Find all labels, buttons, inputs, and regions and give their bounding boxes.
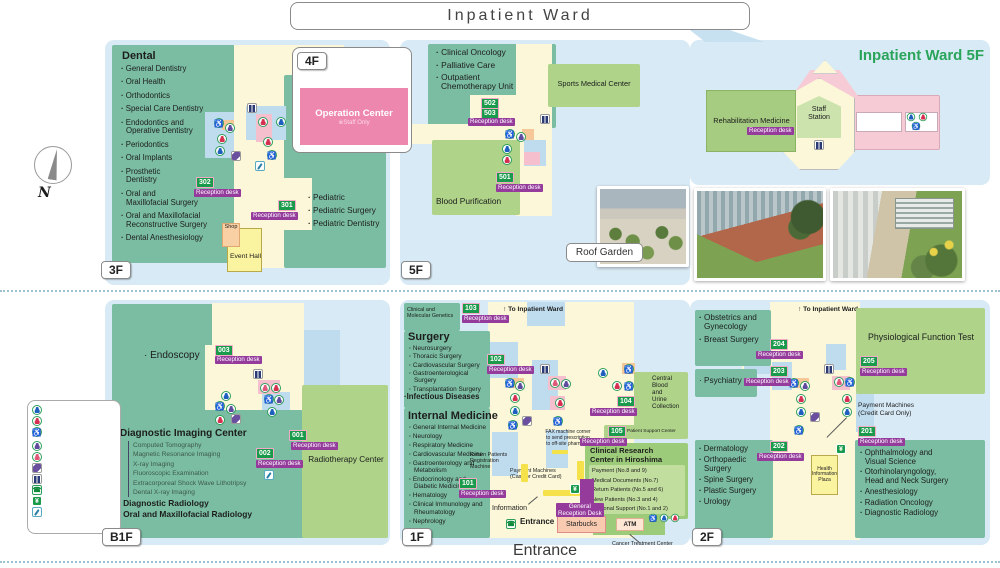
ostomate-icon bbox=[515, 381, 525, 391]
womens-room-icon bbox=[919, 113, 928, 122]
elevator-icon bbox=[540, 114, 550, 124]
starbucks-block: Starbucks bbox=[557, 516, 606, 533]
hospital-building bbox=[895, 198, 954, 229]
reception-502-desk: Reception desk bbox=[468, 118, 515, 126]
reception-104-badge: 104 bbox=[617, 396, 635, 407]
department-item: Orthodontics bbox=[121, 92, 231, 101]
surgery-heading: Surgery bbox=[408, 331, 450, 343]
mens-room-icon bbox=[598, 368, 608, 378]
department-item: Pediatric Dentistry bbox=[308, 219, 388, 228]
crc-item: Payment (No.8 and 9) bbox=[592, 467, 686, 477]
starbucks-label: Starbucks bbox=[566, 521, 597, 528]
multipurpose-restroom-icon: ♿ bbox=[505, 129, 515, 139]
elevator-icon bbox=[32, 474, 42, 484]
b1f-blue-patch-1 bbox=[304, 330, 340, 386]
multipurpose-restroom-icon: ♿ bbox=[845, 377, 855, 387]
brush-teeth-icon bbox=[32, 507, 42, 517]
crc-item: Medical Documents (No.7) bbox=[592, 477, 686, 487]
escalator-icon bbox=[810, 412, 820, 422]
tab-b1f: B1F bbox=[102, 528, 141, 546]
operation-center-label: Operation Center bbox=[315, 108, 393, 119]
operation-center-block: Operation Center ※Staff Only bbox=[300, 88, 408, 145]
womens-room-icon bbox=[671, 514, 680, 523]
ostomate-icon bbox=[800, 381, 810, 391]
elevator-icon bbox=[540, 364, 550, 374]
department-item: Prosthetic Dentistry bbox=[121, 168, 231, 186]
multipurpose-restroom-icon: ♿ bbox=[624, 381, 634, 391]
department-item: Thoracic Surgery bbox=[409, 353, 489, 360]
reception-105-badge: 105 bbox=[608, 426, 626, 437]
roof-garden-label-box: Roof Garden bbox=[566, 243, 643, 262]
health-plaza-block: Health Information Plaza bbox=[811, 455, 838, 495]
ostomate-icon bbox=[32, 441, 42, 451]
mens-room-icon bbox=[842, 407, 852, 417]
obstetrics-list: Obstetrics and GynecologyBreast Surgery bbox=[699, 314, 773, 348]
department-item: Otorhinolaryngology, Head and Neck Surge… bbox=[860, 468, 986, 485]
escalator-icon bbox=[231, 151, 241, 161]
multipurpose-restroom-icon: ♿ bbox=[214, 118, 224, 128]
department-item: Diagnostic Radiology bbox=[118, 499, 308, 508]
endoscopy-label: · Endoscopy bbox=[144, 350, 200, 361]
shop-block: Shop bbox=[222, 223, 240, 247]
multipurpose-restroom-icon: ♿ bbox=[624, 364, 634, 374]
escalator-icon bbox=[32, 463, 42, 473]
ostomate-icon bbox=[561, 379, 571, 389]
reception-204-desk: Reception desk bbox=[756, 351, 803, 359]
pediatric-list: PediatricPediatric SurgeryPediatric Dent… bbox=[308, 193, 388, 232]
department-item: Radiation Oncology bbox=[860, 499, 986, 508]
department-item: Special Care Dentistry bbox=[121, 105, 231, 114]
oncology-list: Clinical OncologyPalliative CareOutpatie… bbox=[436, 48, 548, 95]
multipurpose-restroom-icon: ♿ bbox=[649, 514, 658, 523]
reception-202-badge: 202 bbox=[770, 441, 788, 452]
reception-203-badge: 203 bbox=[770, 366, 788, 377]
rehabilitation-label: Rehabilitation Medicine bbox=[707, 116, 796, 125]
physiological-function-label: Physiological Function Test bbox=[858, 332, 984, 342]
reception-101-badge: 101 bbox=[459, 478, 477, 489]
reception-002-desk: Reception desk bbox=[256, 460, 303, 468]
crc-list: Payment (No.8 and 9)Medical Documents (N… bbox=[592, 467, 686, 515]
entrance-big-label: Entrance bbox=[470, 542, 620, 560]
womens-room-icon bbox=[612, 381, 622, 391]
blood-purification-label: Blood Purification bbox=[436, 196, 501, 206]
roof-garden-label: Roof Garden bbox=[576, 247, 633, 258]
dental-heading: Dental bbox=[122, 50, 156, 62]
roof-garden-photo-3 bbox=[830, 188, 965, 281]
crc-item: Return Patients (No.5 and 6) bbox=[592, 486, 686, 496]
department-item: Oral Health bbox=[121, 78, 231, 87]
reception-202-desk: Reception desk bbox=[757, 453, 804, 461]
public-phone-icon: ☎ bbox=[506, 519, 516, 529]
reception-102-badge: 102 bbox=[487, 354, 505, 365]
department-item: Breast Surgery bbox=[699, 336, 773, 345]
imaging-item: Extracorporeal Shock Wave Lithotripsy bbox=[133, 479, 298, 488]
ostomate-icon bbox=[226, 404, 236, 414]
sports-medical-center-label: Sports Medical Center bbox=[550, 79, 638, 88]
physiological-function-area bbox=[856, 308, 985, 394]
compass-north-label: N bbox=[38, 185, 51, 201]
event-hall-label: Event Hall bbox=[230, 253, 261, 260]
reception-103-desk: Reception desk bbox=[462, 315, 509, 323]
ward-reception-desk: Reception desk bbox=[747, 127, 794, 135]
fax-machine-bar bbox=[552, 450, 568, 454]
reception-205-desk: Reception desk bbox=[860, 368, 907, 376]
elevator-icon bbox=[814, 140, 824, 150]
womens-room-icon bbox=[842, 394, 852, 404]
ostomate-icon bbox=[225, 123, 235, 133]
reception-302-badge: 302 bbox=[196, 177, 214, 188]
womens-room-icon bbox=[271, 383, 281, 393]
mens-room-icon bbox=[221, 391, 231, 401]
general-reception-label: General Reception Desk bbox=[556, 503, 604, 517]
internal-medicine-heading: Internal Medicine bbox=[408, 410, 498, 422]
surgery-list: NeurosurgeryThoracic SurgeryCardiovascul… bbox=[409, 345, 489, 394]
department-item: Pediatric bbox=[308, 193, 388, 202]
department-item: Urology bbox=[699, 498, 775, 507]
cancer-center-label: Cancer Treatment Center bbox=[612, 541, 673, 547]
department-item: Cardiovascular Surgery bbox=[409, 362, 489, 369]
central-blood-label: Central Blood and Urine Collection bbox=[652, 375, 679, 410]
payment-machine-icon: ¥ bbox=[836, 444, 846, 454]
department-item: Anesthesiology bbox=[860, 488, 986, 497]
nursing-room-icon bbox=[834, 377, 844, 387]
reception-301-desk: Reception desk bbox=[251, 212, 298, 220]
department-item: Obstetrics and Gynecology bbox=[699, 314, 773, 332]
imaging-heading: Diagnostic Imaging Center bbox=[120, 428, 247, 439]
internal-medicine-list: General Internal MedicineNeurologyRespir… bbox=[409, 424, 491, 527]
department-item: Endocrinology and Diabetic Medicine bbox=[409, 476, 491, 490]
dental-list: General DentistryOral HealthOrthodontics… bbox=[121, 65, 231, 247]
reception-205-badge: 205 bbox=[860, 356, 878, 367]
radiotherapy-label: Radiotherapy Center bbox=[305, 455, 387, 464]
womens-room-icon bbox=[510, 393, 520, 403]
reception-301-badge: 301 bbox=[278, 200, 296, 211]
elevator-icon bbox=[824, 364, 834, 374]
reception-101-desk: Reception desk bbox=[459, 490, 506, 498]
department-item: Pediatric Surgery bbox=[308, 206, 388, 215]
title-box: Inpatient Ward bbox=[290, 2, 750, 30]
reception-102-desk: Reception desk bbox=[487, 366, 534, 374]
tab-1f: 1F bbox=[402, 528, 432, 546]
public-phone-icon: ☎ bbox=[32, 485, 42, 495]
roof-garden-photo-2 bbox=[694, 188, 826, 281]
staff-station-label: Staff Station bbox=[797, 106, 841, 122]
nursing-room-icon bbox=[32, 452, 42, 462]
separator-bottom bbox=[0, 561, 1000, 563]
mens-room-icon bbox=[907, 113, 916, 122]
atm-block: ATM bbox=[616, 518, 644, 531]
to-inpatient-ward-label: ↑ To Inpatient Ward bbox=[503, 306, 563, 313]
reception-002-badge: 002 bbox=[256, 448, 274, 459]
page-title: Inpatient Ward bbox=[447, 7, 592, 25]
womens-room-icon bbox=[796, 394, 806, 404]
payment-machines-label: Payment Machines (Cash or Credit Card) bbox=[510, 468, 568, 480]
imaging-item: Dental X-ray Imaging bbox=[133, 488, 298, 497]
department-item: Diagnostic Radiology bbox=[860, 509, 986, 518]
reception-104-desk: Reception desk bbox=[590, 408, 637, 416]
payment-machine-icon: ¥ bbox=[570, 484, 580, 494]
department-item: Respiratory Medicine bbox=[409, 442, 491, 449]
tab-3f: 3F bbox=[101, 261, 131, 279]
department-item: Ophthalmology and Visual Science bbox=[860, 449, 986, 466]
department-item: General Dentistry bbox=[121, 65, 231, 74]
staff-only-label: ※Staff Only bbox=[338, 119, 369, 126]
reception-001-desk: Reception desk bbox=[291, 442, 338, 450]
multipurpose-restroom-icon: ♿ bbox=[505, 378, 515, 388]
elevator-icon bbox=[253, 369, 263, 379]
reception-501-badge: 501 bbox=[496, 172, 514, 183]
mens-room-icon bbox=[276, 117, 286, 127]
department-item: Palliative Care bbox=[436, 61, 548, 70]
5f-pink-patch bbox=[524, 152, 540, 165]
womens-room-icon bbox=[555, 398, 565, 408]
nursing-room-icon bbox=[260, 383, 270, 393]
womens-room-icon bbox=[217, 134, 227, 144]
clinical-research-label: Clinical Research Center in Hiroshima bbox=[590, 447, 662, 464]
brush-teeth-icon bbox=[264, 470, 274, 480]
mens-room-icon bbox=[660, 514, 669, 523]
inpatient-ward-5f-title: Inpatient Ward 5F bbox=[822, 47, 984, 64]
multipurpose-restroom-icon: ♿ bbox=[267, 150, 277, 160]
entrance-label: Entrance bbox=[520, 517, 554, 526]
department-item: Nephrology bbox=[409, 518, 491, 525]
womens-room-icon bbox=[32, 416, 42, 426]
payment-machine-icon: ¥ bbox=[32, 496, 42, 506]
mens-room-icon bbox=[796, 407, 806, 417]
reception-201-desk: Reception desk bbox=[858, 438, 905, 446]
womens-room-icon bbox=[502, 155, 512, 165]
infectious-diseases-label: ·Infectious Diseases bbox=[404, 392, 479, 401]
genetics-label: Clinical and Molecular Genetics bbox=[407, 307, 453, 320]
mens-room-icon bbox=[502, 144, 512, 154]
nursing-room-icon bbox=[550, 378, 560, 388]
department-item: Clinical Oncology bbox=[436, 48, 548, 57]
to-inpatient-ward-label: ↑ To Inpatient Ward bbox=[798, 306, 858, 313]
mens-room-icon bbox=[215, 146, 225, 156]
hospital-floor-guide: Inpatient Ward N Dental General Dentistr… bbox=[0, 0, 1000, 568]
womens-room-icon bbox=[215, 415, 225, 425]
department-item: Oral and Maxillofacial Radiology bbox=[118, 510, 308, 519]
department-item: Gastroenterological Surgery bbox=[409, 370, 489, 384]
brush-teeth-icon bbox=[255, 161, 265, 171]
reception-003-desk: Reception desk bbox=[215, 356, 262, 364]
information-label: Information bbox=[492, 505, 527, 512]
reception-203-desk: Reception desk bbox=[744, 378, 791, 386]
ophthalmology-list: Ophthalmology and Visual ScienceOtorhino… bbox=[860, 449, 986, 520]
crc-item: New Patients (No.3 and 4) bbox=[592, 496, 686, 506]
tab-4f: 4F bbox=[297, 52, 327, 70]
department-item: Plastic Surgery bbox=[699, 487, 775, 496]
atm-label: ATM bbox=[624, 521, 637, 528]
elevator-icon bbox=[247, 103, 257, 113]
department-item: Dental Anesthesiology bbox=[121, 234, 231, 243]
womens-room-icon bbox=[258, 117, 268, 127]
multipurpose-restroom-icon: ♿ bbox=[794, 425, 804, 435]
multipurpose-restroom-icon: ♿ bbox=[264, 394, 274, 404]
ostomate-icon bbox=[516, 132, 526, 142]
mens-room-icon bbox=[32, 405, 42, 415]
payment-machine-bar bbox=[577, 461, 584, 480]
multipurpose-restroom-icon: ♿ bbox=[912, 122, 921, 131]
department-item: Spine Surgery bbox=[699, 476, 775, 485]
tab-2f: 2F bbox=[692, 528, 722, 546]
b1f-corridor-1 bbox=[212, 303, 304, 347]
department-item: Outpatient Chemotherapy Unit bbox=[436, 73, 548, 91]
reception-501-desk: Reception desk bbox=[496, 184, 543, 192]
shop-label: Shop bbox=[223, 224, 239, 230]
radiology-list: Diagnostic RadiologyOral and Maxillofaci… bbox=[118, 499, 308, 521]
escalator-icon bbox=[231, 414, 241, 424]
psychiatry-label: · Psychiatry bbox=[699, 376, 742, 385]
department-item: Neurology bbox=[409, 433, 491, 440]
reception-201-badge: 201 bbox=[858, 426, 876, 437]
reception-001-badge: 001 bbox=[289, 430, 307, 441]
patient-support-label: Patient Support Center bbox=[627, 429, 676, 434]
reception-204-badge: 204 bbox=[770, 339, 788, 350]
reception-103-badge: 103 bbox=[462, 303, 480, 314]
reception-105-desk: Reception desk bbox=[580, 438, 627, 446]
tab-5f: 5F bbox=[401, 261, 431, 279]
multipurpose-restroom-icon: ♿ bbox=[508, 420, 518, 430]
multipurpose-restroom-icon: ♿ bbox=[32, 427, 42, 437]
department-item: Clinical Immunology and Rheumatology bbox=[409, 501, 491, 515]
payment-machines-2f-label: Payment Machines (Credit Card Only) bbox=[858, 402, 914, 417]
return-machine-bar bbox=[521, 464, 528, 482]
department-item: Oral and Maxillofacial Reconstructive Su… bbox=[121, 212, 231, 230]
ward-room-row-1 bbox=[856, 112, 902, 132]
multipurpose-restroom-icon: ♿ bbox=[553, 416, 563, 426]
department-item: Oral Implants bbox=[121, 154, 231, 163]
womens-room-icon bbox=[263, 137, 273, 147]
multipurpose-restroom-icon: ♿ bbox=[215, 401, 225, 411]
ostomate-icon bbox=[274, 395, 284, 405]
department-item: Neurosurgery bbox=[409, 345, 489, 352]
health-plaza-label: Health Information Plaza bbox=[812, 467, 837, 484]
reception-003-badge: 003 bbox=[215, 345, 233, 356]
mens-room-icon bbox=[510, 406, 520, 416]
reception-302-desk: Reception desk bbox=[194, 189, 241, 197]
separator-top bbox=[0, 290, 1000, 292]
mens-room-icon bbox=[267, 407, 277, 417]
escalator-icon bbox=[522, 416, 532, 426]
department-item: General Internal Medicine bbox=[409, 424, 491, 431]
